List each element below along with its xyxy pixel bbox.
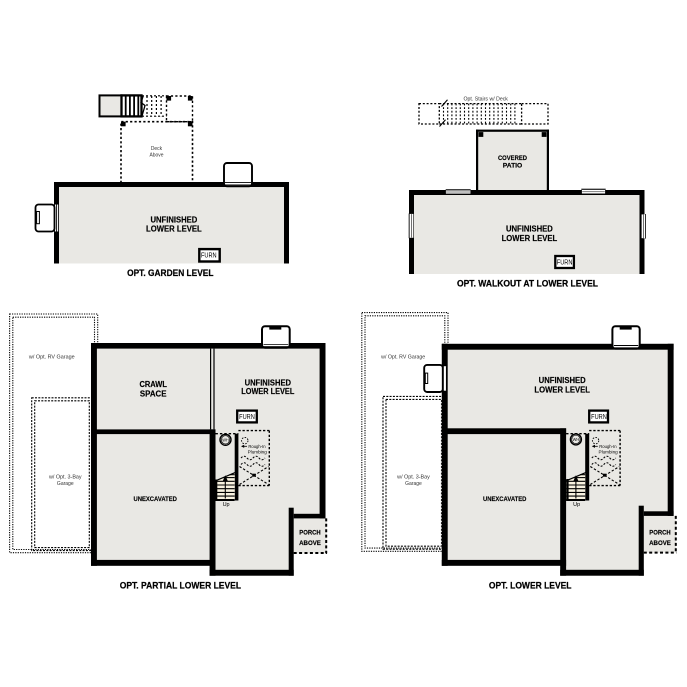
svg-text:LOWER LEVEL: LOWER LEVEL	[502, 234, 558, 243]
svg-text:SPACE: SPACE	[140, 389, 167, 398]
svg-text:Plumbing: Plumbing	[599, 449, 619, 454]
svg-text:OPT. WALKOUT AT LOWER LEVEL: OPT. WALKOUT AT LOWER LEVEL	[457, 278, 598, 288]
svg-text:ABOVE: ABOVE	[299, 540, 321, 547]
svg-text:UNFINISHED: UNFINISHED	[150, 215, 197, 224]
svg-text:FURN: FURN	[557, 258, 573, 267]
svg-text:w/ Opt. RV Garage: w/ Opt. RV Garage	[381, 355, 425, 361]
svg-text:ABOVE: ABOVE	[649, 540, 671, 547]
svg-text:Rough-In: Rough-In	[248, 444, 266, 449]
svg-text:UNFINISHED: UNFINISHED	[506, 225, 553, 234]
svg-text:w/ Opt. RV Garage: w/ Opt. RV Garage	[29, 355, 75, 361]
svg-text:OPT. GARDEN LEVEL: OPT. GARDEN LEVEL	[127, 268, 214, 278]
svg-text:COVERED: COVERED	[498, 155, 527, 162]
svg-text:CRAWL: CRAWL	[139, 380, 167, 389]
svg-text:PORCH: PORCH	[299, 530, 320, 537]
svg-text:LOWER LEVEL: LOWER LEVEL	[241, 387, 294, 396]
svg-text:Garage: Garage	[405, 481, 422, 487]
svg-text:OPT. LOWER LEVEL: OPT. LOWER LEVEL	[489, 581, 572, 591]
svg-text:OPT. PARTIAL LOWER LEVEL: OPT. PARTIAL LOWER LEVEL	[120, 581, 242, 591]
svg-text:WH: WH	[573, 437, 580, 442]
svg-text:Up: Up	[573, 502, 580, 508]
svg-text:Above: Above	[150, 153, 164, 159]
svg-text:Plumbing: Plumbing	[248, 449, 268, 454]
svg-text:UNEXCAVATED: UNEXCAVATED	[483, 496, 527, 503]
svg-text:WH: WH	[222, 438, 229, 443]
svg-text:w/ Opt. 3-Bay: w/ Opt. 3-Bay	[49, 475, 82, 481]
svg-text:UNFINISHED: UNFINISHED	[539, 376, 586, 385]
svg-text:Rough-In: Rough-In	[599, 444, 617, 449]
svg-text:FURN: FURN	[591, 412, 607, 421]
svg-text:w/ Opt. 3-Bay: w/ Opt. 3-Bay	[397, 475, 430, 481]
svg-text:PATIO: PATIO	[503, 163, 523, 170]
svg-text:PORCH: PORCH	[649, 530, 670, 537]
svg-text:Opt. Stairs w/ Deck: Opt. Stairs w/ Deck	[464, 96, 509, 102]
svg-text:Deck: Deck	[151, 146, 163, 152]
svg-text:LOWER LEVEL: LOWER LEVEL	[146, 225, 202, 234]
svg-text:Up: Up	[223, 502, 230, 508]
svg-text:Garage: Garage	[57, 481, 74, 487]
svg-text:UNEXCAVATED: UNEXCAVATED	[133, 496, 177, 503]
svg-text:FURN: FURN	[201, 251, 217, 260]
svg-text:LOWER LEVEL: LOWER LEVEL	[534, 385, 590, 394]
svg-text:FURN: FURN	[239, 412, 255, 421]
